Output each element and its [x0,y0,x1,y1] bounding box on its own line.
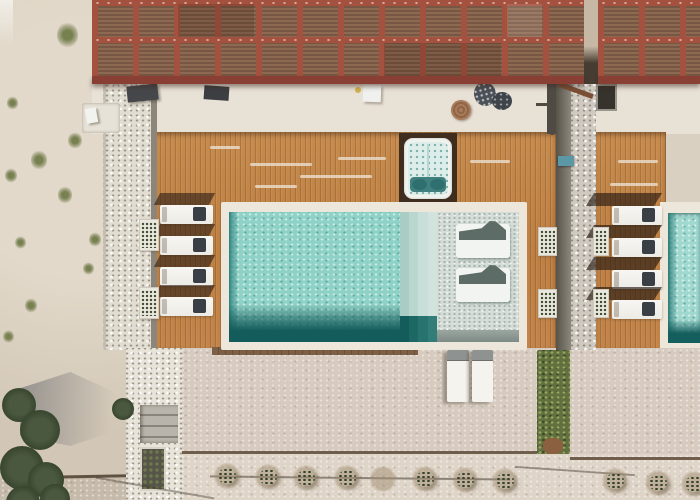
rail-vertical [551,103,554,135]
hedge [537,350,570,454]
ledge-drop-edge [437,330,519,342]
potted-plant [538,227,557,256]
patio-lounger [447,350,469,402]
dry-plant [25,298,37,313]
in-pool-lounger [456,268,510,302]
shrub [496,473,514,489]
pool-water [229,212,519,342]
curb-line-left [180,451,537,454]
pergola-fascia [598,76,700,84]
sun-lounger [160,236,213,255]
beanbag-chair [492,92,512,110]
sun-lounger [612,300,662,319]
deck-bleached-streak [338,157,386,160]
aerial-photo [0,0,700,500]
hot-tub-seat-shadow [412,179,427,190]
folded-towel [193,238,206,252]
white-side-table [363,85,382,103]
pergola-beam [598,37,700,43]
dark-window [596,84,617,111]
deck-bleached-streak [255,185,297,188]
deck-bleached-streak [300,175,372,178]
folded-towel [193,299,206,313]
folded-towel [193,207,206,221]
potted-plant [538,289,557,318]
lounger-headrest [447,350,469,361]
dry-plant [15,236,25,249]
walkway-steps [140,405,178,443]
watering-basin [369,466,397,492]
patio-lounger [472,350,493,402]
folded-towel [642,208,655,222]
deck-bleached-streak [470,160,510,163]
curb-line-right [570,457,700,460]
tree-canopy [112,398,134,420]
potted-plant [593,289,609,318]
sun-lounger [612,206,662,225]
pergola-roof-left [92,0,584,84]
shrub [416,471,434,487]
shrub [685,476,700,492]
folded-towel [642,302,655,316]
deck-bleached-streak [250,163,312,166]
yellow-cushion [355,87,361,93]
pergola-fascia [92,76,584,84]
pergola-gap [584,0,598,84]
sun-lounger [160,267,213,286]
dry-plant [5,168,17,183]
shrub [649,475,667,491]
potted-plant [139,287,159,319]
pergola-panel-tint [178,4,254,37]
potted-plant [139,219,159,251]
dry-plant [68,132,82,149]
blue-step [558,156,574,166]
gravel-patio [180,348,700,456]
white-chair [85,107,98,124]
sun-lounger [160,205,213,224]
deck-bleached-streak [210,146,240,149]
deck-bleached-streak [618,160,658,163]
shrub [218,468,236,484]
sun-lounger [160,297,213,316]
shrub [456,472,474,488]
shrub [259,469,277,485]
pergola-beam [598,0,700,6]
pool-steps-deep [400,316,437,342]
deck-bleached-streak [610,183,658,186]
folded-towel [193,269,206,283]
hot-tub-seat-shadow [430,179,445,190]
stone-wall [556,80,596,350]
shrub [606,473,624,489]
folded-towel [642,272,655,286]
pergola-roof-right [598,0,700,84]
tree-canopy [20,410,60,450]
hot-tub [404,138,452,199]
folded-towel [642,240,655,254]
right-pool-deep [668,319,700,343]
shrub [338,470,356,486]
hedge-bare-patch [543,438,563,454]
white-wall-edge [0,0,13,46]
wall-shadow [556,80,571,350]
potted-plant [593,227,609,256]
deep-end [229,304,400,342]
rattan-mat [451,100,471,120]
pergola-panel-tint [507,4,542,37]
tanning-ledge [437,212,519,342]
dry-plant [7,96,18,110]
outdoor-sofa [126,83,159,102]
shrub [297,470,315,486]
pergola-beam [92,37,584,43]
dry-plant [89,232,101,247]
lounger-headrest [472,350,493,361]
dry-plant [83,262,93,275]
hot-tub-interior [408,142,448,195]
dry-plant [3,330,13,343]
sun-lounger [612,238,662,257]
outdoor-chair [204,85,230,101]
in-pool-lounger [456,224,510,258]
pergola-panel-tint [384,43,501,76]
dry-plant [31,150,47,170]
dry-plant [58,186,72,204]
dry-plant [57,22,78,48]
hot-tub-divider [427,144,429,178]
right-pool-water [668,213,700,343]
jacuzzi-recess [399,133,457,202]
